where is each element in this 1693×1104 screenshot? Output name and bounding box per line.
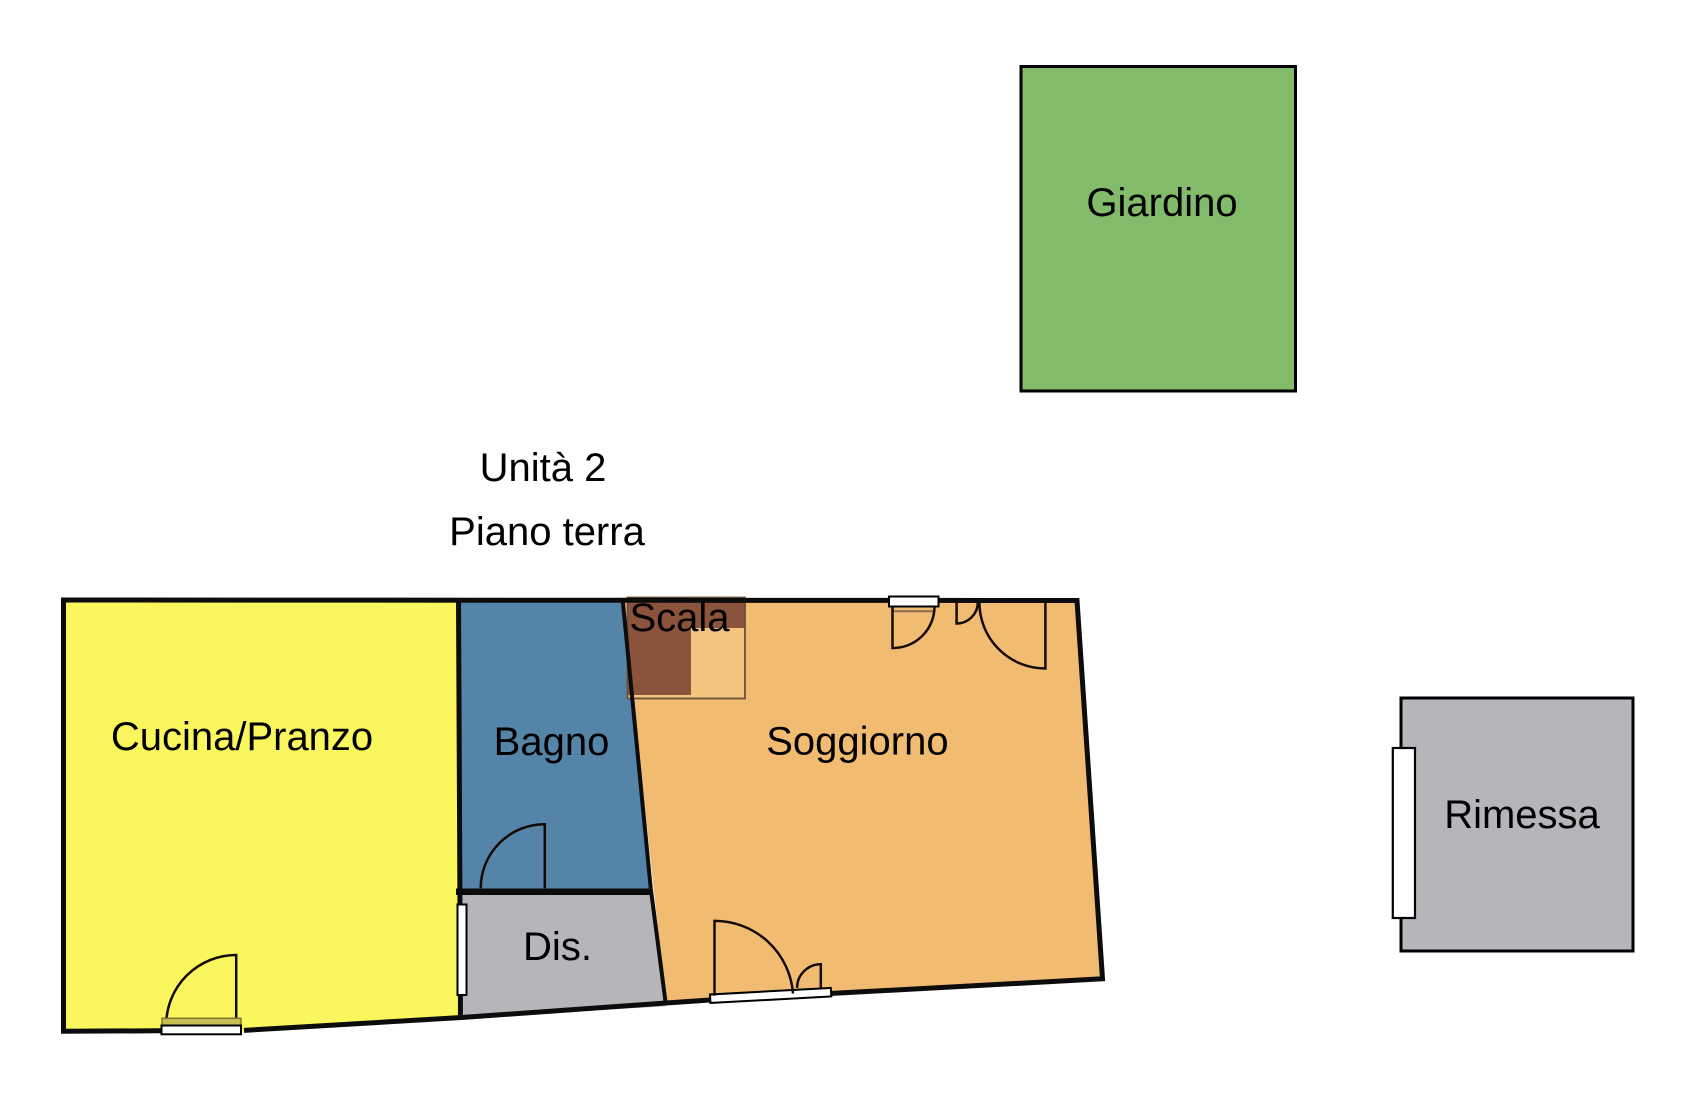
- svg-text:Dis.: Dis.: [523, 925, 592, 969]
- svg-text:Cucina/Pranzo: Cucina/Pranzo: [111, 715, 373, 759]
- svg-text:Scala: Scala: [629, 596, 730, 640]
- svg-text:Rimessa: Rimessa: [1444, 793, 1600, 837]
- svg-text:Piano terra: Piano terra: [449, 510, 645, 554]
- svg-text:Bagno: Bagno: [494, 720, 610, 764]
- svg-text:Giardino: Giardino: [1086, 181, 1237, 225]
- svg-text:Soggiorno: Soggiorno: [766, 720, 948, 764]
- svg-text:Unità 2: Unità 2: [480, 446, 607, 490]
